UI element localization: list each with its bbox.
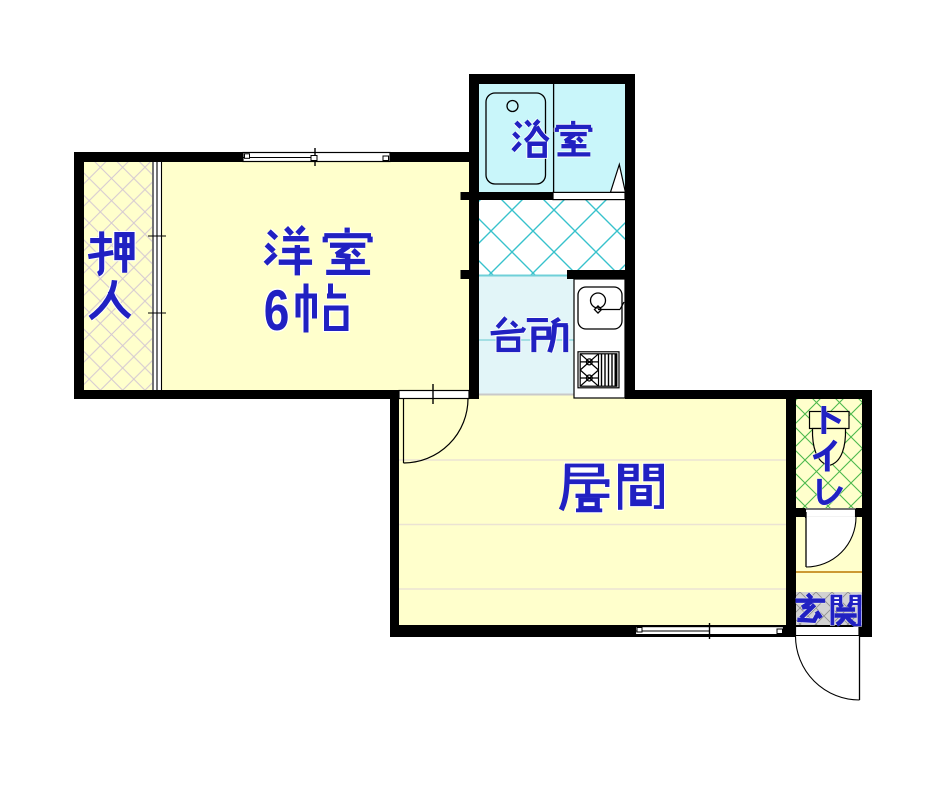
svg-text:6: 6 (264, 279, 290, 343)
